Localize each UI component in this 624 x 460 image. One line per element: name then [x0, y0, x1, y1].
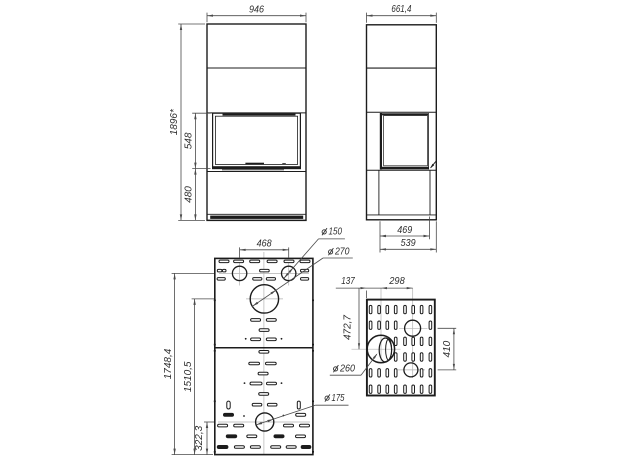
svg-text:298: 298 — [388, 275, 405, 287]
svg-text:661,4: 661,4 — [391, 3, 411, 15]
svg-text:1896*: 1896* — [169, 108, 180, 135]
svg-text:469: 469 — [397, 224, 412, 236]
svg-text:150: 150 — [329, 226, 343, 238]
svg-text:322,3: 322,3 — [194, 425, 205, 450]
svg-text:1510,5: 1510,5 — [183, 361, 194, 392]
svg-text:468: 468 — [257, 237, 272, 249]
svg-text:539: 539 — [401, 237, 416, 249]
svg-text:270: 270 — [334, 246, 349, 258]
svg-text:410: 410 — [442, 340, 453, 357]
svg-text:946: 946 — [249, 3, 264, 15]
svg-text:1748,4: 1748,4 — [163, 348, 174, 379]
svg-text:480: 480 — [184, 186, 195, 203]
svg-text:472,7: 472,7 — [343, 315, 354, 340]
svg-text:548: 548 — [184, 132, 195, 149]
svg-text:175: 175 — [332, 392, 345, 404]
svg-text:137: 137 — [341, 275, 355, 287]
svg-text:260: 260 — [339, 363, 355, 375]
